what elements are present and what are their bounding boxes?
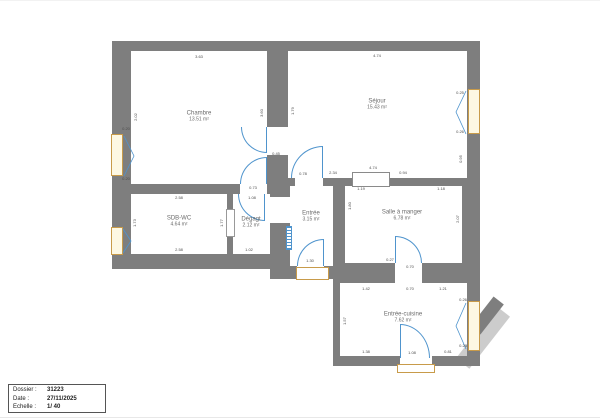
door-leaf-salle xyxy=(395,236,396,263)
dimension-label: 0.25 xyxy=(456,91,464,95)
title-row-date: Date : 27/11/2025 xyxy=(13,396,101,402)
dimension-label: 0.73 xyxy=(249,186,257,190)
echelle-value: 1/ 40 xyxy=(47,404,60,410)
dimension-label: 3.60 xyxy=(260,109,264,117)
opening-degagt-entree xyxy=(270,197,290,223)
room-area: 4.64 m² xyxy=(167,223,191,229)
window-sejour-right xyxy=(468,89,480,134)
title-row-dossier: Dossier : 31223 xyxy=(13,387,101,393)
dimension-label: 1.79 xyxy=(291,107,295,115)
wall-entree-salle xyxy=(333,178,345,271)
dimension-label: 1.77 xyxy=(220,219,224,227)
dimension-label: 2.58 xyxy=(175,196,183,200)
dimension-label: 1.02 xyxy=(245,248,253,252)
room-label-chambre: Chambre 13.51 m² xyxy=(187,111,212,124)
dimension-label: 0.78 xyxy=(299,172,307,176)
dimension-label: 0.20 xyxy=(122,127,130,131)
dimension-label: 1.42 xyxy=(362,287,370,291)
entry-landing xyxy=(296,267,329,280)
wall-cuisine-left xyxy=(333,283,340,366)
room-area: 2.12 m² xyxy=(241,224,260,230)
dimension-label: 1.18 xyxy=(437,187,445,191)
door-arc-chambre xyxy=(240,157,267,184)
opening-entree-sejour xyxy=(295,178,323,186)
dimension-label: 1.30 xyxy=(306,259,314,263)
dimension-label: 0.94 xyxy=(399,171,407,175)
dossier-value: 31223 xyxy=(47,387,64,393)
sdb-door-leaf xyxy=(226,209,235,237)
dimension-label: 1.80 xyxy=(348,202,352,210)
door-leaf-chambre xyxy=(266,157,267,184)
dimension-label: 0.70 xyxy=(406,287,414,291)
dimension-label: 2.34 xyxy=(329,171,337,175)
dimension-label: 0.95 xyxy=(459,155,463,163)
dimension-label: 0.81 xyxy=(444,350,452,354)
dimension-label: 0.45 xyxy=(272,152,280,156)
dimension-label: 1.08 xyxy=(248,196,256,200)
door-leaf-entree-entry xyxy=(323,239,324,266)
door-leaf-degagt xyxy=(264,194,265,221)
floor-plan: Chambre 13.51 m² Séjour 15.43 m² SDB-WC … xyxy=(0,1,600,417)
room-label-sdb-wc: SDB-WC 4.64 m² xyxy=(167,216,191,229)
room-label-salle-a-manger: Salle à manger 6.78 m² xyxy=(382,210,422,223)
dimension-label: 3.63 xyxy=(195,55,203,59)
room-area: 13.51 m² xyxy=(187,118,212,124)
dimension-label: 4.74 xyxy=(373,54,381,58)
room-label-entree-cuisine: Entrée-cuisine 7.62 m² xyxy=(384,312,422,325)
glazed-opening-094 xyxy=(352,172,390,187)
room-area: 15.43 m² xyxy=(367,106,387,112)
title-block: Dossier : 31223 Date : 27/11/2025 Echell… xyxy=(8,384,106,413)
dimension-label: 0.26 xyxy=(459,298,467,302)
dimension-label: 0.26 xyxy=(456,130,464,134)
drawing-page: Chambre 13.51 m² Séjour 15.43 m² SDB-WC … xyxy=(0,0,600,418)
dimension-label: 1.19 xyxy=(357,187,365,191)
dimension-label: 2.07 xyxy=(456,215,460,223)
room-label-sejour: Séjour 15.43 m² xyxy=(367,99,387,112)
door-leaf-sejour xyxy=(322,146,323,178)
window-cuisine-right xyxy=(468,301,480,351)
dimension-label: 0.27 xyxy=(386,258,394,262)
dimension-label: 1.08 xyxy=(408,351,416,355)
date-value: 27/11/2025 xyxy=(47,396,77,402)
door-leaf-chambre-sejour xyxy=(266,127,267,153)
date-label: Date : xyxy=(13,396,47,402)
dimension-label: 4.74 xyxy=(369,166,377,170)
cuisine-landing xyxy=(397,364,435,373)
room-label-degagt: Dégagt 2.12 m² xyxy=(241,217,260,230)
door-leaf-cuisine xyxy=(400,324,401,358)
room-label-entree: Entrée 3.15 m² xyxy=(302,211,320,224)
window-symbol-sdb xyxy=(121,228,133,254)
dimension-label: 0.28 xyxy=(459,344,467,348)
room-area: 3.15 m² xyxy=(302,218,320,224)
wall-chambre-sejour xyxy=(267,51,288,184)
door-arc-chambre-sejour xyxy=(241,127,267,153)
wall-salle-right xyxy=(462,186,480,263)
dossier-label: Dossier : xyxy=(13,387,47,393)
room-area: 6.78 m² xyxy=(382,217,422,223)
door-arc-salle xyxy=(395,236,422,263)
dimension-label: 1.57 xyxy=(343,317,347,325)
echelle-label: Echelle : xyxy=(13,404,47,410)
wall-top xyxy=(112,41,480,51)
radiator-entree xyxy=(286,226,292,250)
dimension-label: 0.20 xyxy=(122,177,130,181)
room-area: 7.62 m² xyxy=(384,319,422,325)
window-symbol-chambre xyxy=(122,135,136,177)
dimension-label: 1.73 xyxy=(133,219,137,227)
dimension-label: 0.70 xyxy=(406,265,414,269)
dimension-label: 1.21 xyxy=(439,287,447,291)
title-row-echelle: Echelle : 1/ 40 xyxy=(13,404,101,410)
dimension-label: 1.38 xyxy=(362,350,370,354)
wall-sdb-bottom xyxy=(112,254,290,269)
dimension-label: 2.02 xyxy=(134,113,138,121)
dimension-label: 2.58 xyxy=(175,248,183,252)
